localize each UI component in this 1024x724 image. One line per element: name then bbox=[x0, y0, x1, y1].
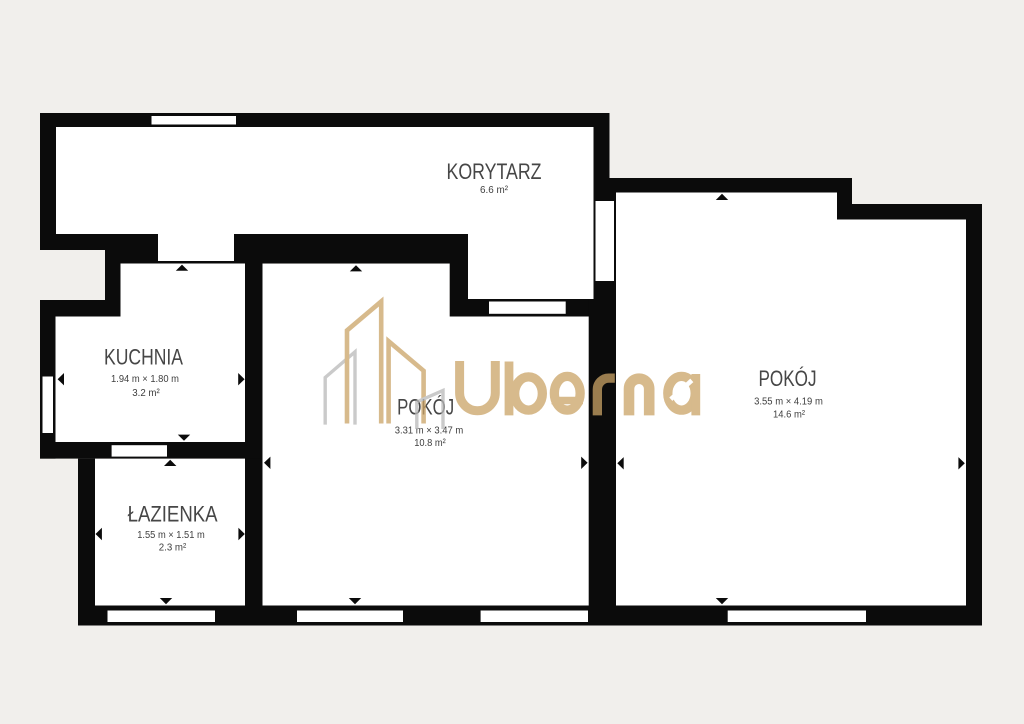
svg-text:3.2 m²: 3.2 m² bbox=[132, 388, 160, 399]
svg-text:14.6 m²: 14.6 m² bbox=[773, 410, 806, 421]
svg-text:3.31 m × 3.47 m: 3.31 m × 3.47 m bbox=[395, 426, 464, 437]
svg-text:1.94 m × 1.80 m: 1.94 m × 1.80 m bbox=[111, 374, 179, 385]
svg-text:6.6 m²: 6.6 m² bbox=[480, 185, 509, 196]
svg-text:2.3 m²: 2.3 m² bbox=[159, 543, 187, 554]
svg-text:KORYTARZ: KORYTARZ bbox=[447, 161, 542, 185]
svg-text:ŁAZIENKA: ŁAZIENKA bbox=[128, 503, 218, 527]
svg-text:KUCHNIA: KUCHNIA bbox=[104, 346, 183, 370]
svg-text:3.55 m × 4.19 m: 3.55 m × 4.19 m bbox=[754, 397, 823, 408]
svg-text:POKÓJ: POKÓJ bbox=[759, 367, 817, 392]
svg-text:1.55 m × 1.51 m: 1.55 m × 1.51 m bbox=[137, 530, 205, 541]
svg-text:10.8 m²: 10.8 m² bbox=[414, 438, 446, 449]
